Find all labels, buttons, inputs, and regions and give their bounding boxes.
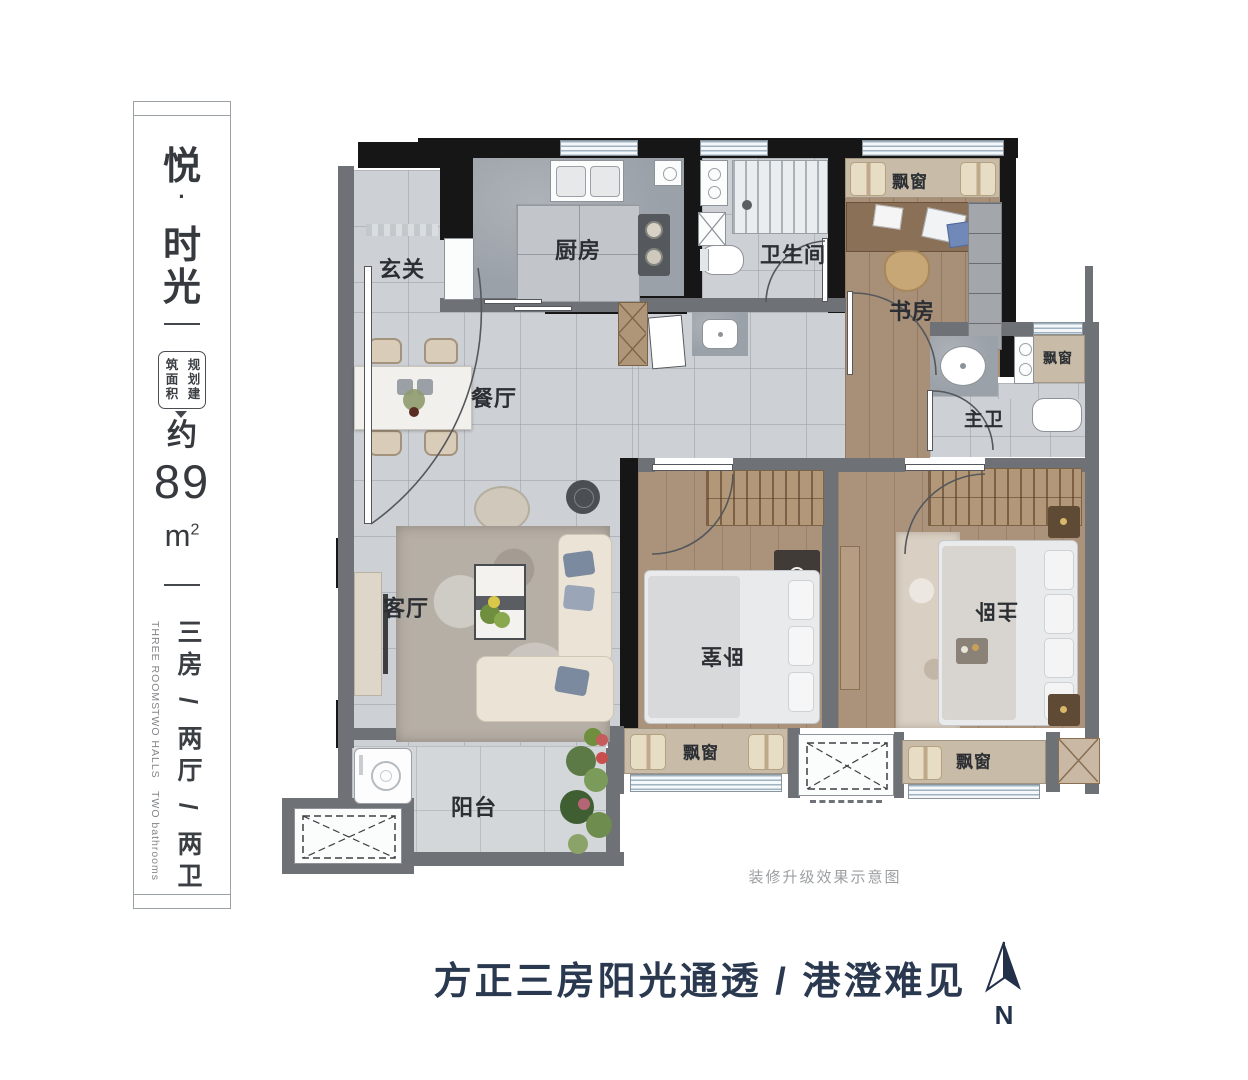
window: [908, 784, 1040, 799]
master-bath-floor: [998, 383, 1085, 399]
side-cabinet: [840, 546, 860, 690]
sidebar-card: 悦 · 时 光 筑面积 规划建 约 89 m2 三房 / 两厅 / 两卫 THR…: [133, 101, 231, 909]
sink-bowl: [590, 166, 620, 197]
dining-chair: [368, 338, 402, 364]
drain-dot: [960, 363, 966, 369]
divider: [164, 584, 200, 586]
flower: [578, 798, 590, 810]
area-type-box: 筑面积 规划建: [158, 351, 206, 409]
layout-en-two-halls: TWO HALLS: [149, 709, 161, 779]
drain-dot: [718, 332, 723, 337]
dining-chair: [424, 430, 458, 456]
project-title-char: 光: [134, 256, 230, 311]
north-label: N: [973, 1000, 1035, 1031]
room-label-master-bath: 主卫: [964, 405, 1004, 432]
faucet: [708, 186, 721, 199]
heater-dial: [663, 167, 677, 181]
bath-washstand: [700, 160, 728, 206]
sofa-pillow: [563, 584, 595, 611]
washing-machine: [354, 748, 412, 804]
equipment-platform: [798, 734, 894, 796]
sink-bowl: [556, 166, 586, 197]
side-table-dark: [566, 480, 600, 514]
dashed-x-icon: [799, 735, 895, 797]
faucet: [708, 168, 721, 181]
toiletry-shelf: [1014, 336, 1034, 384]
plant: [494, 612, 510, 628]
nightstand: [1048, 506, 1080, 538]
bed-pillow: [788, 580, 814, 620]
window: [700, 140, 768, 156]
area-value: 89: [134, 454, 230, 509]
room-label-balcony: 阳台: [451, 790, 497, 822]
bay-pillow: [748, 734, 784, 770]
shelf-item: [1019, 363, 1032, 376]
wall: [358, 142, 442, 168]
bed-pillow: [1044, 638, 1074, 678]
project-title-dot: ·: [134, 184, 230, 210]
bath-flue: [698, 212, 726, 246]
tray-cup: [961, 646, 968, 653]
shower-area: [732, 160, 828, 234]
area-type-left: 筑面积: [162, 358, 181, 402]
kitchen-cabinet: [444, 238, 474, 300]
sliding-door: [514, 306, 572, 311]
bay-pillow: [960, 162, 996, 196]
toilet: [1032, 398, 1082, 432]
corridor-wood-floor: [845, 377, 930, 458]
window: [630, 774, 782, 792]
room-label-kitchen: 厨房: [555, 233, 601, 265]
wall: [1085, 458, 1099, 738]
flower: [596, 752, 608, 764]
divider: [164, 323, 200, 325]
wall: [828, 158, 845, 313]
wall: [1085, 322, 1099, 458]
bed-pillow: [788, 626, 814, 666]
plant: [584, 768, 608, 792]
bay-pillow: [850, 162, 886, 196]
compass-north-icon: [973, 936, 1035, 998]
wall: [822, 467, 838, 728]
x-icon: [619, 303, 646, 364]
door-leaf: [652, 464, 733, 471]
tray-cup: [972, 644, 979, 651]
bed-pillow: [1044, 550, 1074, 590]
shower-head-icon: [742, 200, 752, 210]
bed-blanket: [942, 546, 1016, 720]
room-label-bay-bedroom: 飘窗: [683, 739, 719, 764]
room-label-bay-master-bath: 飘窗: [1043, 348, 1073, 368]
room-label-study: 书房: [889, 294, 935, 326]
wall: [338, 166, 354, 748]
tv-cabinet: [354, 572, 382, 696]
area-unit: m2: [134, 518, 230, 554]
washer-panel: [359, 755, 363, 775]
floorplan-page: 悦 · 时 光 筑面积 规划建 约 89 m2 三房 / 两厅 / 两卫 THR…: [0, 0, 1248, 1080]
wall: [606, 748, 620, 858]
layout-en-two-bathrooms: TWO bathrooms: [149, 791, 161, 881]
nightstand: [1048, 694, 1080, 726]
flue-column: [1058, 738, 1100, 784]
toilet-tank: [700, 249, 709, 271]
water-heater: [654, 160, 682, 186]
shelf-item: [1019, 343, 1032, 356]
platform-grille: [810, 796, 882, 803]
room-label-entry: 玄关: [379, 252, 425, 284]
platform-grille: [300, 866, 396, 873]
desk-chair: [884, 250, 930, 292]
dining-chair: [368, 430, 402, 456]
room-label-bedroom: 卧室: [700, 642, 744, 672]
sofa-pillow: [562, 550, 595, 578]
door-leaf: [364, 266, 372, 524]
room-label-bay-study: 飘窗: [892, 168, 928, 193]
area-type-right: 规划建: [184, 358, 203, 402]
bay-pillow: [908, 746, 942, 780]
centerpiece-bowl: [409, 407, 419, 417]
window: [560, 140, 638, 156]
room-label-dining: 餐厅: [471, 381, 517, 413]
wall: [620, 458, 638, 746]
layout-en-three-rooms: THREE ROOMS: [149, 621, 161, 710]
x-icon: [699, 213, 725, 245]
approx-label: 约: [134, 410, 230, 454]
door-leaf: [648, 315, 686, 370]
window: [862, 140, 1004, 156]
unit-m: m: [165, 518, 191, 553]
plant: [488, 596, 500, 608]
washer-drum: [380, 770, 392, 782]
door-leaf: [905, 464, 985, 471]
x-icon: [1059, 739, 1098, 782]
door-leaf: [927, 390, 933, 451]
dining-chair: [424, 338, 458, 364]
flower-pot: [596, 734, 608, 746]
bed-pillow: [788, 672, 814, 712]
papers: [873, 204, 904, 230]
project-title-char: 悦: [134, 135, 230, 190]
lamp-dot: [1060, 518, 1067, 525]
room-label-master-bedroom: 主卧: [974, 597, 1018, 627]
door-leaf: [847, 291, 853, 375]
unit-sup: 2: [190, 522, 199, 539]
side-table-ring: [574, 488, 594, 508]
sliding-door: [484, 299, 542, 304]
window: [1033, 322, 1083, 335]
headline: 方正三房阳光通透 / 港澄难见: [430, 950, 970, 1005]
burner: [645, 221, 663, 239]
divider: [134, 115, 230, 116]
burner: [645, 248, 663, 266]
sofa-pillow: [554, 665, 590, 696]
entry-mat: [366, 224, 438, 236]
coffee-table: [474, 564, 526, 640]
room-label-bathroom: 卫生间: [760, 239, 826, 269]
plan-caption: 装修升级效果示意图: [690, 866, 960, 887]
bed-pillow: [1044, 594, 1074, 634]
room-label-living: 客厅: [383, 591, 429, 623]
dashed-x-icon: [295, 809, 403, 865]
plant: [568, 834, 588, 854]
wall: [1085, 266, 1093, 322]
bed-tray: [956, 638, 988, 664]
bookshelf: [968, 202, 1002, 350]
storage-cabinet: [618, 302, 648, 366]
wall: [440, 142, 473, 240]
plant: [586, 812, 612, 838]
room-label-bay-master-bedroom: 飘窗: [956, 748, 992, 773]
wardrobe: [706, 470, 824, 526]
lamp-dot: [1060, 706, 1067, 713]
bay-pillow: [630, 734, 666, 770]
sofa-seat: [476, 656, 614, 722]
equipment-platform: [294, 808, 402, 864]
layout-text-vertical: 三房 / 两厅 / 两卫: [170, 619, 206, 895]
